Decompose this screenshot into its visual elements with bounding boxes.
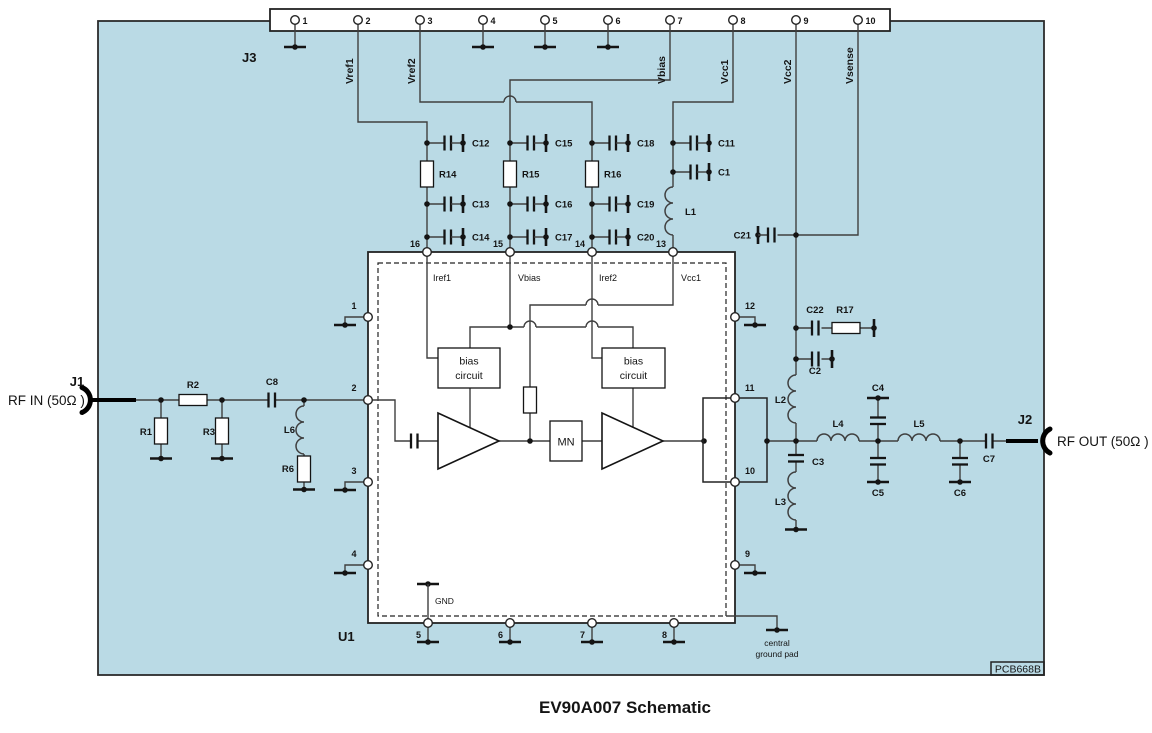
gnd-label: GND (435, 596, 454, 606)
svg-text:5: 5 (416, 630, 421, 640)
svg-text:C21: C21 (734, 231, 752, 242)
svg-text:C18: C18 (637, 139, 654, 150)
svg-text:ground pad: ground pad (755, 649, 798, 659)
page-title: EV90A007 Schematic (539, 698, 711, 717)
vref1-label: Vref1 (344, 58, 356, 84)
svg-text:5: 5 (553, 16, 558, 26)
svg-text:R6: R6 (282, 464, 294, 475)
svg-text:15: 15 (493, 239, 503, 249)
j3-pin-2 (354, 16, 363, 25)
svg-text:C13: C13 (472, 200, 489, 211)
svg-text:L1: L1 (685, 207, 697, 218)
svg-text:2: 2 (366, 16, 371, 26)
vcc1-label: Vcc1 (719, 59, 731, 84)
u1-pin-8 (670, 619, 679, 628)
interstage-feed-resistor (524, 387, 537, 413)
svg-text:R3: R3 (203, 427, 215, 438)
j3-label: J3 (242, 50, 256, 65)
svg-text:14: 14 (575, 239, 585, 249)
u1-pin-5 (424, 619, 433, 628)
svg-text:3: 3 (428, 16, 433, 26)
u1-pin-3 (364, 478, 373, 487)
j3-pin-4 (479, 16, 488, 25)
svg-text:C22: C22 (806, 305, 823, 316)
iref2-label: Iref2 (599, 273, 617, 283)
resistor-r16 (586, 161, 599, 187)
u1-pin-1 (364, 313, 373, 322)
svg-text:L6: L6 (284, 425, 295, 436)
svg-text:bias: bias (624, 356, 643, 368)
rf-out-label: RF OUT (50Ω ) (1057, 434, 1149, 449)
svg-text:C3: C3 (812, 457, 824, 468)
svg-text:2: 2 (351, 383, 356, 393)
resistor-r17 (832, 323, 860, 334)
u1-pin-11 (731, 394, 740, 403)
u1-pin-2 (364, 396, 373, 405)
svg-text:C11: C11 (718, 139, 736, 150)
bias-circuit-2-box (602, 348, 665, 388)
svg-text:L2: L2 (775, 395, 786, 406)
u1-pin-15 (506, 248, 515, 257)
svg-text:C2: C2 (809, 366, 821, 377)
j3-pin-3 (416, 16, 425, 25)
svg-text:9: 9 (804, 16, 809, 26)
j3-pin-6 (604, 16, 613, 25)
svg-text:C4: C4 (872, 383, 885, 394)
u1-pin-16 (423, 248, 432, 257)
svg-text:R17: R17 (836, 305, 853, 316)
j3-pin-8 (729, 16, 738, 25)
j2-label: J2 (1018, 412, 1032, 427)
schematic-canvas: C12 R14 C13 C14 C15 R15 C16 C17 C18 R16 … (0, 0, 1152, 728)
svg-text:L5: L5 (913, 419, 925, 430)
svg-text:1: 1 (303, 16, 308, 26)
rf-in-label: RF IN (50Ω ) (8, 393, 85, 408)
j3-pin-5 (541, 16, 550, 25)
vbias-label: Vbias (656, 56, 668, 84)
svg-text:3: 3 (351, 466, 356, 476)
svg-text:7: 7 (678, 16, 683, 26)
svg-text:R16: R16 (604, 170, 621, 181)
svg-text:central: central (764, 638, 790, 648)
u1-pin-13 (669, 248, 678, 257)
bias-circuit-1-box (438, 348, 500, 388)
j3-pin-1 (291, 16, 300, 25)
svg-text:C20: C20 (637, 233, 654, 244)
resistor-r6 (298, 456, 311, 482)
svg-text:R1: R1 (140, 427, 153, 438)
svg-text:circuit: circuit (455, 370, 483, 382)
svg-text:MN: MN (557, 437, 574, 449)
svg-text:C7: C7 (983, 454, 995, 465)
svg-text:9: 9 (745, 549, 750, 559)
svg-text:13: 13 (656, 239, 666, 249)
svg-text:C5: C5 (872, 488, 885, 499)
resistor-r2 (179, 395, 207, 406)
svg-text:1: 1 (351, 301, 356, 311)
svg-text:16: 16 (410, 239, 420, 249)
svg-text:6: 6 (616, 16, 621, 26)
j3-pin-10 (854, 16, 863, 25)
svg-text:C15: C15 (555, 139, 573, 150)
svg-text:4: 4 (491, 16, 496, 26)
svg-text:R15: R15 (522, 170, 540, 181)
vsense-label: Vsense (844, 47, 856, 84)
svg-text:C19: C19 (637, 200, 654, 211)
j3-pin-7 (666, 16, 675, 25)
vcc1-internal-label: Vcc1 (681, 273, 701, 283)
resistor-r14 (421, 161, 434, 187)
iref1-label: Iref1 (433, 273, 451, 283)
svg-text:L3: L3 (775, 497, 786, 508)
svg-text:C8: C8 (266, 377, 278, 388)
svg-text:C1: C1 (718, 168, 731, 179)
u1-label: U1 (338, 629, 355, 644)
u1-pin-6 (506, 619, 515, 628)
u1-pin-7 (588, 619, 597, 628)
svg-text:10: 10 (745, 466, 755, 476)
svg-text:8: 8 (741, 16, 746, 26)
svg-text:R14: R14 (439, 170, 457, 181)
svg-text:C17: C17 (555, 233, 572, 244)
vcc2-label: Vcc2 (782, 59, 794, 84)
svg-text:12: 12 (745, 301, 755, 311)
svg-text:circuit: circuit (620, 370, 648, 382)
schematic-page: C12 R14 C13 C14 C15 R15 C16 C17 C18 R16 … (0, 0, 1152, 728)
resistor-r3 (216, 418, 229, 444)
svg-text:11: 11 (745, 383, 755, 393)
svg-text:7: 7 (580, 630, 585, 640)
svg-text:4: 4 (351, 549, 356, 559)
svg-text:10: 10 (866, 16, 876, 26)
svg-text:C16: C16 (555, 200, 572, 211)
u1-pin-12 (731, 313, 740, 322)
svg-text:R2: R2 (187, 380, 199, 391)
svg-text:L4: L4 (832, 419, 844, 430)
vbias-internal-label: Vbias (518, 273, 541, 283)
u1-pin-14 (588, 248, 597, 257)
j2-connector-icon (1043, 429, 1050, 453)
cap-label: C12 (472, 139, 489, 150)
u1-pin-9 (731, 561, 740, 570)
svg-text:C6: C6 (954, 488, 966, 499)
vref2-label: Vref2 (406, 58, 418, 84)
resistor-r1 (155, 418, 168, 444)
svg-text:6: 6 (498, 630, 503, 640)
j3-pin-9 (792, 16, 801, 25)
j1-label: J1 (70, 374, 84, 389)
resistor-r15 (504, 161, 517, 187)
svg-text:8: 8 (662, 630, 667, 640)
u1-pin-4 (364, 561, 373, 570)
u1-pin-10 (731, 478, 740, 487)
svg-text:bias: bias (459, 356, 478, 368)
svg-text:C14: C14 (472, 233, 490, 244)
pcb-code: PCB668B (995, 664, 1041, 676)
